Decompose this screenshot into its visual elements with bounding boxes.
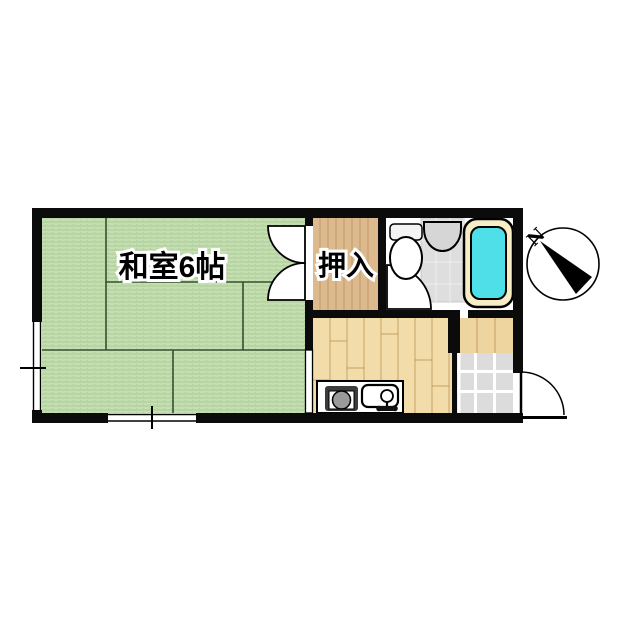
bathroom — [386, 218, 513, 310]
wall-closet-right — [378, 218, 386, 318]
entrance-door — [521, 372, 567, 418]
wall-left-upper — [32, 208, 42, 322]
tatami-kitchen-opening — [306, 350, 313, 413]
stove-icon — [325, 386, 358, 411]
bathtub-icon — [464, 219, 513, 307]
wall-tatami-closet-bottom — [305, 300, 313, 350]
floorplan-drawing: 和室6帖 押入 N — [0, 0, 640, 640]
wall-bathroom-bottom-right — [468, 310, 523, 318]
wall-tatami-closet-top — [305, 218, 313, 226]
entrance-door-swing — [521, 372, 564, 415]
wall-top — [32, 208, 523, 218]
entry-step-floor — [460, 318, 513, 353]
compass: N — [523, 224, 599, 300]
kitchen-counter — [317, 381, 403, 413]
wall-right — [513, 208, 523, 373]
tatami-room — [42, 218, 305, 413]
entrance — [457, 318, 513, 415]
wall-bottom-main — [196, 413, 523, 423]
wall-kitchen-entry-stub — [448, 310, 460, 353]
tatami-room-label: 和室6帖 — [119, 250, 226, 284]
wall-bottom-left — [32, 413, 108, 423]
floorplan-canvas: 和室6帖 押入 N — [0, 0, 640, 640]
toilet-icon — [390, 224, 422, 279]
kitchen-sink-icon — [362, 385, 398, 411]
entrance-tile-floor — [457, 353, 513, 415]
kitchen — [313, 318, 452, 413]
closet-label: 押入 — [318, 249, 374, 281]
wall-kitchen-entry-divider — [452, 353, 457, 415]
